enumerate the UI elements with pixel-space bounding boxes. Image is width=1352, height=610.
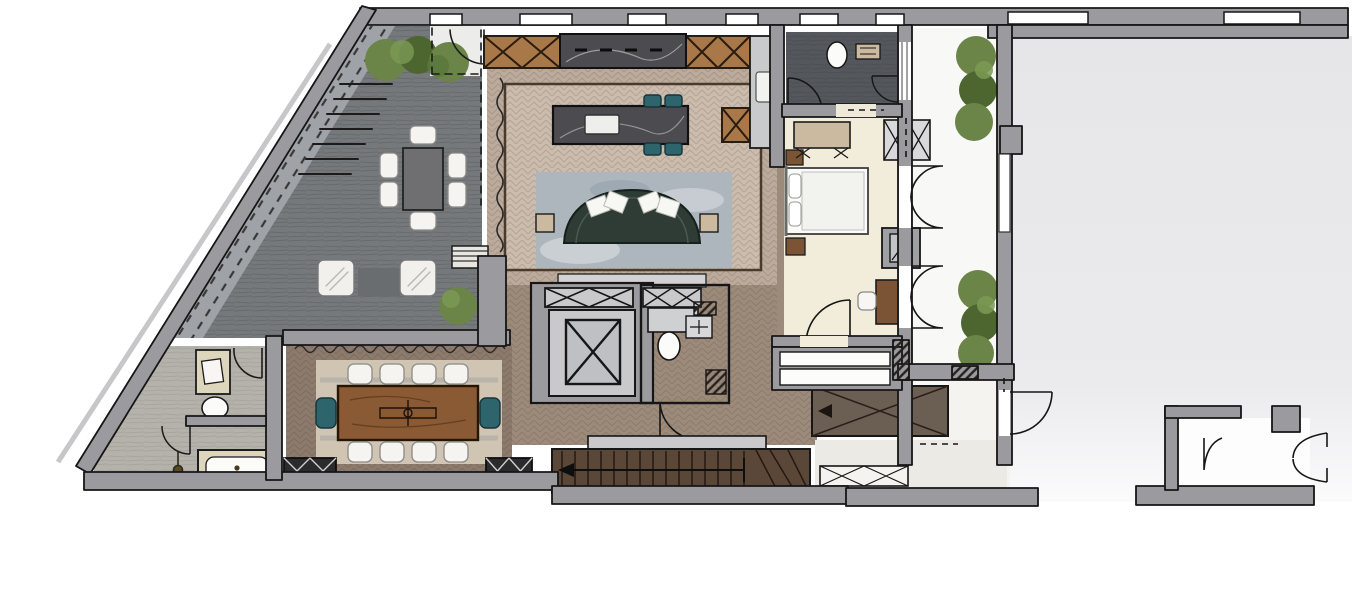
bed: [786, 166, 868, 236]
bedroom-door-gap: [800, 336, 848, 347]
courtyard-door-gap: [999, 390, 1010, 436]
room-dining: [284, 346, 532, 485]
dining-table: [338, 386, 478, 440]
nightstand-1: [786, 150, 803, 165]
terrace-glazing: [999, 154, 1010, 232]
pillow-2: [789, 202, 801, 226]
wall-entry-pier: [1272, 406, 1300, 432]
pillow-1: [789, 174, 801, 198]
desk-chair: [858, 292, 876, 310]
wall-bottom-left: [84, 472, 558, 490]
wc-toilet: [658, 332, 680, 360]
wall-bottom-right: [846, 488, 1038, 506]
wall-shower-divider: [186, 416, 266, 426]
ensuite-window-gap: [899, 42, 911, 100]
wc-closet: [643, 288, 701, 307]
elevator: [549, 310, 635, 396]
hatched-pier-4: [893, 340, 909, 380]
wall-lounge-right: [478, 256, 506, 346]
side-table-left: [536, 214, 554, 232]
nightstand-2: [786, 238, 805, 255]
floor-plan-drawing: [0, 0, 1352, 610]
bath-vanity: [196, 350, 230, 394]
wall-courtyard-top: [988, 25, 1348, 38]
stair-landing: [588, 436, 766, 449]
wall-bathroom-right: [266, 336, 282, 480]
dresser-bar-2: [780, 369, 890, 385]
dresser-bar-1: [780, 352, 890, 366]
hatched-pier-3: [952, 366, 978, 379]
island-sink: [585, 115, 619, 134]
dining-end-chair-right: [480, 398, 500, 428]
hall-cabinet: [820, 466, 908, 486]
hatched-pier-2: [706, 370, 726, 394]
wall-entry-bottom: [1136, 486, 1314, 505]
bath-sink: [202, 359, 224, 384]
lounge-table: [403, 148, 443, 210]
duvet: [802, 172, 864, 230]
wall-lounge-dining: [283, 330, 510, 345]
wall-top: [360, 8, 1348, 25]
dining-end-chair-left: [316, 398, 336, 428]
ensuite-toilet: [827, 42, 847, 68]
floor-plan-canvas: [0, 0, 1352, 610]
ensuite-shelf: [856, 44, 880, 59]
core-top-closet: [545, 288, 633, 307]
french-door-gap-1: [899, 166, 911, 228]
wall-entry-top: [1165, 406, 1241, 418]
lounge-corner-shrub-highlight: [442, 290, 460, 308]
hatched-pier-1: [694, 302, 716, 315]
side-table-right: [700, 214, 718, 232]
lounge-small-rug: [358, 268, 400, 296]
wall-bottom-mid: [552, 486, 848, 504]
kitchen-counter-marble: [560, 34, 686, 68]
living-area: [536, 172, 732, 268]
wall-bedroom-left: [770, 25, 784, 167]
french-door-gap-2: [899, 266, 911, 328]
wall-terrace-pier: [1000, 126, 1022, 154]
tub-drain: [234, 465, 239, 470]
ramp: [812, 386, 948, 436]
